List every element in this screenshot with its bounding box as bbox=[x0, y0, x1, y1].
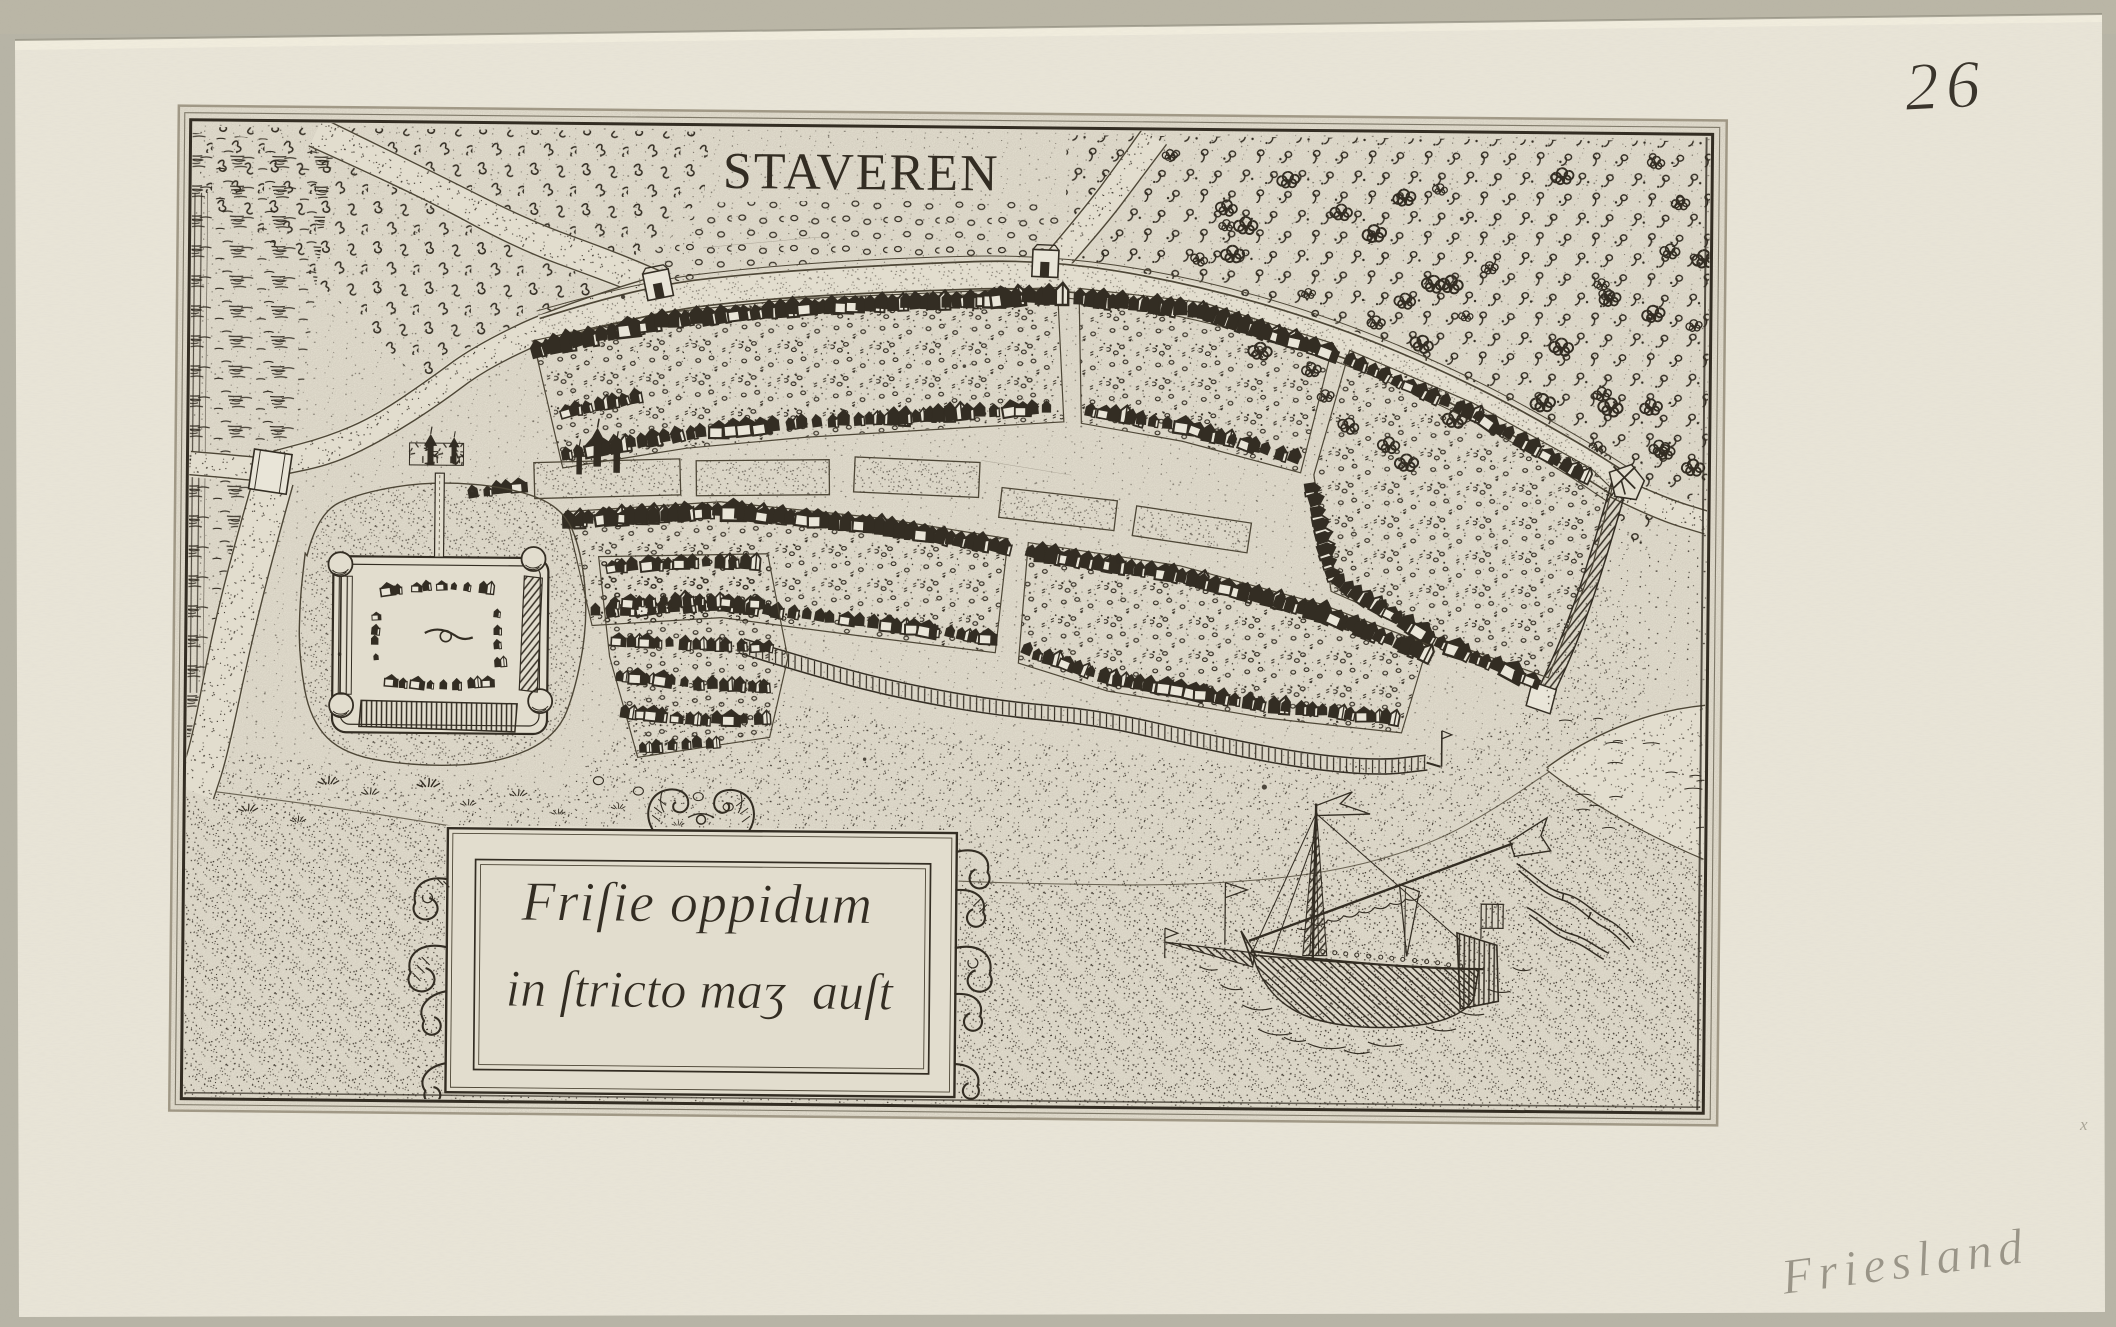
svg-text:Friſie oppidum: Friſie oppidum bbox=[520, 871, 873, 936]
svg-text:in ſtricto maʒ auſt: in ſtricto maʒ auſt bbox=[506, 961, 895, 1022]
svg-text:x: x bbox=[2079, 1115, 2088, 1134]
svg-text:26: 26 bbox=[1903, 45, 1989, 125]
svg-text:STAVEREN: STAVEREN bbox=[723, 143, 1000, 203]
